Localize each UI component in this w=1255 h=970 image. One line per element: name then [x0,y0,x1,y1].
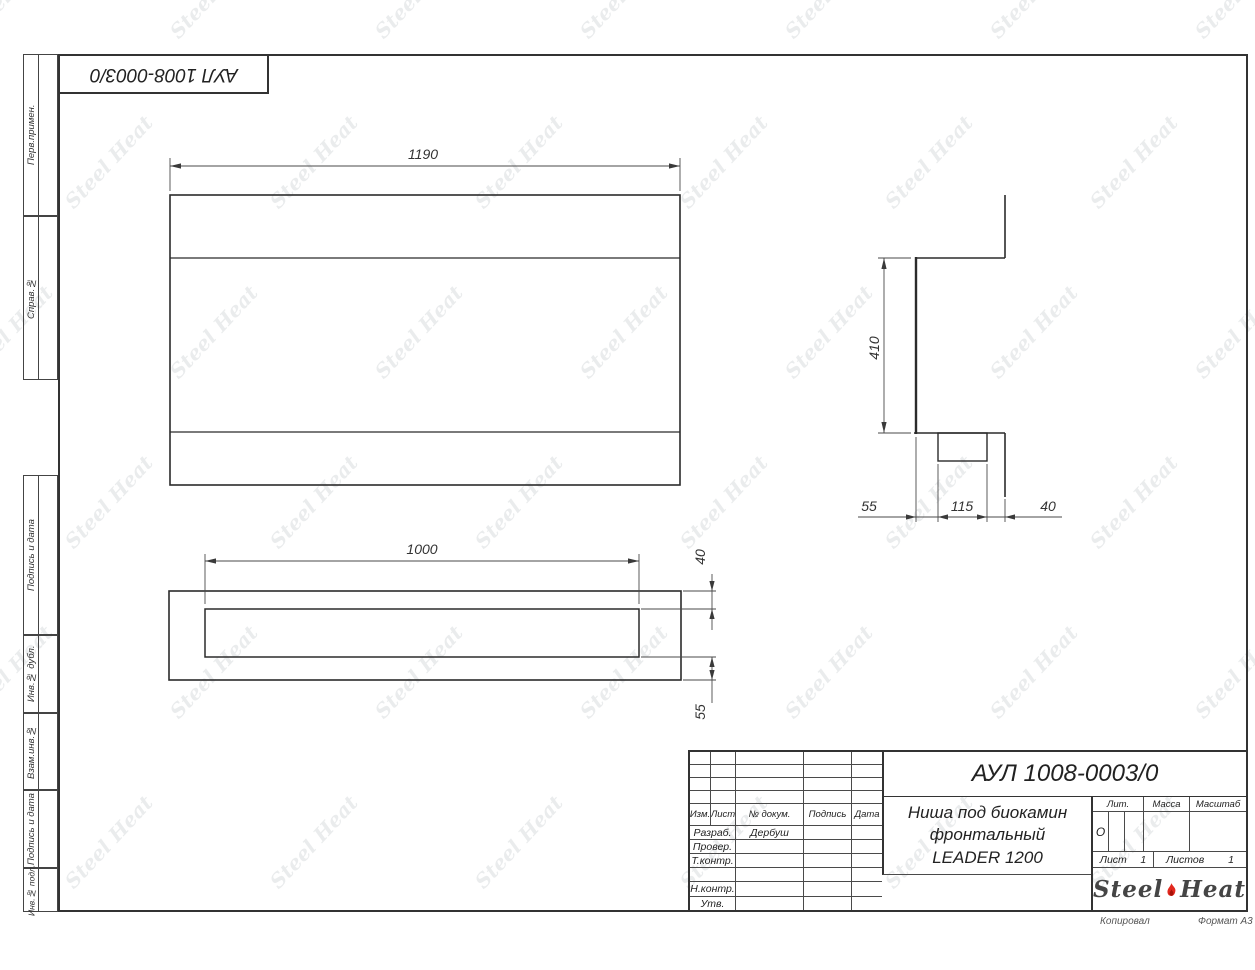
lit-cell-3 [1125,812,1144,852]
sig-row-label [690,868,736,882]
lit-massa-masshtab-header: Лит. Масса Масштаб [1093,797,1246,812]
sig-row-label: Т.контр. [690,854,736,868]
sig-row-value [736,882,804,897]
masshtab-label: Масштаб [1190,797,1246,812]
listov-cell: Листов 1 [1154,852,1246,867]
col-header-izm: Изм. [690,804,711,826]
format-label: Формат А3 [1198,916,1253,927]
watermark-text: Steel Heat [165,0,263,43]
sig-row-value [736,854,804,868]
copied-label: Копировал [1100,916,1150,927]
lit-label: Лит. [1093,797,1144,812]
massa-value [1144,812,1190,852]
list-label: Лист [1100,854,1127,866]
margin-box-inv-podl: Инв.№ подл. [23,868,58,912]
margin-divider [38,636,39,712]
part-name-line1: Ниша под биокамин [908,802,1067,824]
margin-box-inv-dubl: Инв.№ дубл. [23,635,58,713]
margin-label: Справ.№ [24,217,39,379]
company-logo: Steel Heat [1093,868,1246,910]
part-name-line3: LEADER 1200 [932,847,1043,869]
margin-divider [38,714,39,789]
sig-row-value [736,868,804,882]
sig-row-value: Дербуш [736,826,804,840]
margin-divider [38,55,39,215]
list-value: 1 [1140,854,1146,866]
lit-value: О [1093,812,1109,852]
margin-label: Подпись и дата [24,791,39,867]
flame-icon [1166,876,1177,903]
title-block-right: Лит. Масса Масштаб О Лист 1 Листов 1 [1091,797,1246,910]
watermark-text: Steel Heat [370,0,468,43]
sig-row-value [736,897,804,910]
watermark-text: Steel Heat [780,0,878,43]
margin-box-sprav-no: Справ.№ [23,216,58,380]
sig-row-label: Разраб. [690,826,736,840]
margin-divider [38,217,39,379]
margin-divider [38,791,39,867]
margin-box-vzam-inv: Взам.инв.№ [23,713,58,790]
sig-row-value [736,840,804,854]
margin-label: Перв.примен. [24,55,39,215]
margin-box-podpis-data-2: Подпись и дата [23,790,58,868]
top-stamp-box: АУЛ 1008-0003/0 [58,54,269,94]
part-name-cell: Ниша под биокамин фронтальный LEADER 120… [882,797,1091,875]
sig-row-label: Провер. [690,840,736,854]
massa-label: Масса [1144,797,1190,812]
listov-value: 1 [1228,854,1234,866]
margin-box-podpis-data-1: Подпись и дата [23,475,58,635]
list-cell: Лист 1 [1093,852,1154,867]
designation-cell: АУЛ 1008-0003/0 [882,752,1246,797]
logo-steel-text: Steel [1093,876,1163,903]
margin-label: Инв.№ дубл. [24,636,39,712]
sig-row-label: Н.контр. [690,882,736,897]
col-header-data: Дата [852,804,882,826]
margin-label: Взам.инв.№ [24,714,39,789]
part-name-line2: фронтальный [930,824,1046,846]
margin-label: Подпись и дата [24,476,39,634]
margin-divider [38,869,39,911]
sig-row-label: Утв. [690,897,736,910]
col-header-list: Лист [711,804,736,826]
margin-box-perv-primen: Перв.примен. [23,54,58,216]
logo-heat-text: Heat [1180,876,1246,903]
title-block: Изм. Лист № докум. Подпись Дата Разраб. … [688,750,1248,912]
watermark-text: Steel Heat [0,0,58,43]
listov-label: Листов [1166,854,1204,866]
watermark-text: Steel Heat [575,0,673,43]
col-header-dokum: № докум. [736,804,804,826]
masshtab-value [1190,812,1246,852]
lit-cell-2 [1109,812,1125,852]
margin-divider [38,476,39,634]
lit-massa-masshtab-values: О [1093,812,1246,852]
top-stamp-text: АУЛ 1008-0003/0 [90,63,238,85]
sheet-count-row: Лист 1 Листов 1 [1093,852,1246,868]
col-header-podpis: Подпись [804,804,852,826]
watermark-text: Steel Heat [1190,0,1255,43]
drawing-sheet: Steel HeatSteel HeatSteel HeatSteel Heat… [0,0,1255,970]
change-table: Изм. Лист № докум. Подпись Дата Разраб. … [690,752,882,910]
margin-label: Инв.№ подл. [24,869,39,911]
watermark-text: Steel Heat [985,0,1083,43]
